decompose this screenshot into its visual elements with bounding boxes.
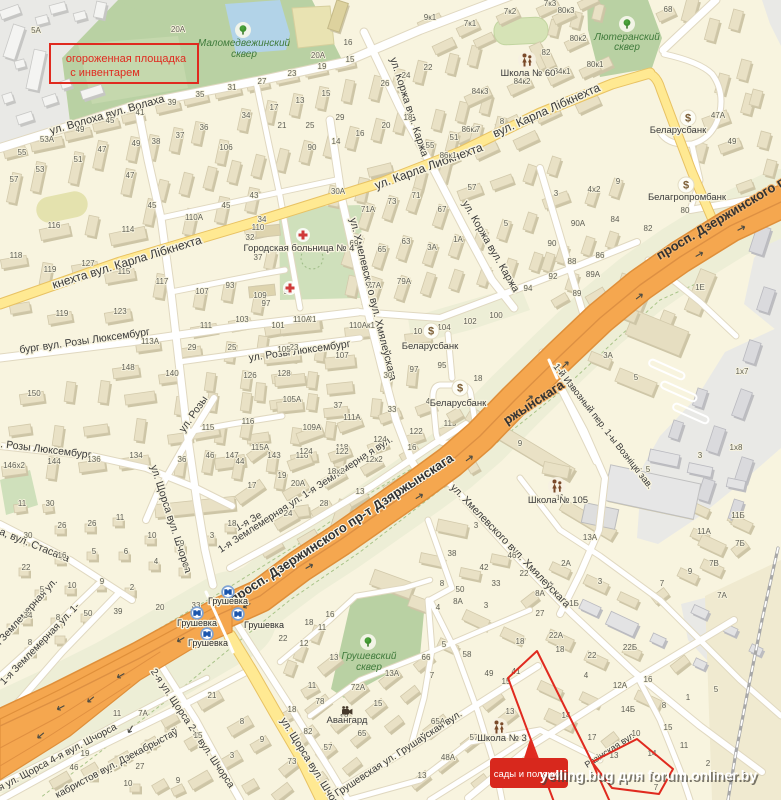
svg-text:48А: 48А: [441, 753, 456, 762]
svg-text:34: 34: [258, 215, 267, 224]
svg-text:110А: 110А: [293, 315, 312, 324]
svg-text:15: 15: [322, 89, 331, 98]
svg-text:$: $: [685, 113, 691, 125]
svg-text:20А: 20А: [171, 25, 186, 34]
svg-text:сквер: сквер: [614, 42, 640, 53]
svg-text:16: 16: [344, 38, 353, 47]
svg-text:65А: 65А: [431, 717, 446, 726]
svg-text:10: 10: [148, 531, 157, 540]
svg-text:14: 14: [332, 137, 341, 146]
svg-text:15: 15: [194, 731, 203, 740]
svg-text:115: 115: [118, 267, 131, 276]
svg-text:Белагропромбанк: Белагропромбанк: [648, 192, 727, 203]
svg-text:33: 33: [388, 405, 397, 414]
svg-text:82: 82: [644, 224, 653, 233]
svg-text:16: 16: [408, 443, 417, 452]
svg-text:$: $: [428, 326, 434, 338]
svg-text:5А: 5А: [31, 26, 41, 35]
svg-text:Школа № 105: Школа № 105: [528, 495, 588, 506]
svg-text:4х2: 4х2: [588, 185, 601, 194]
svg-text:22А: 22А: [549, 631, 564, 640]
svg-text:9: 9: [616, 177, 621, 186]
svg-text:11: 11: [113, 709, 122, 718]
svg-text:122: 122: [409, 427, 423, 436]
svg-text:42: 42: [480, 563, 489, 572]
svg-text:113А: 113А: [141, 337, 160, 346]
svg-text:34: 34: [242, 111, 251, 120]
svg-text:15: 15: [374, 699, 383, 708]
svg-text:Школа № 60: Школа № 60: [501, 68, 556, 79]
svg-text:13А: 13А: [583, 533, 598, 542]
svg-text:93: 93: [226, 281, 235, 290]
svg-text:Грушевский: Грушевский: [342, 651, 397, 662]
svg-text:18: 18: [305, 618, 314, 627]
svg-text:116: 116: [48, 221, 61, 230]
svg-text:71А: 71А: [361, 205, 376, 214]
svg-text:82: 82: [542, 48, 551, 57]
svg-text:111А: 111А: [343, 413, 361, 422]
svg-text:147: 147: [225, 451, 239, 460]
svg-text:22: 22: [279, 634, 288, 643]
svg-text:95: 95: [438, 361, 447, 370]
svg-text:Грушевка: Грушевка: [188, 638, 228, 648]
svg-text:46: 46: [206, 451, 215, 460]
svg-text:100: 100: [489, 311, 503, 320]
svg-text:18: 18: [556, 645, 565, 654]
svg-text:7к3: 7к3: [544, 0, 557, 8]
svg-text:29: 29: [336, 113, 345, 122]
svg-text:11А: 11А: [697, 527, 711, 536]
svg-text:18: 18: [288, 705, 297, 714]
svg-text:90: 90: [308, 143, 317, 152]
svg-text:3: 3: [210, 531, 215, 540]
svg-text:84: 84: [611, 215, 620, 224]
svg-text:7А: 7А: [138, 709, 148, 718]
svg-text:Грушевка: Грушевка: [244, 620, 284, 630]
svg-text:105А: 105А: [283, 395, 302, 404]
svg-text:37: 37: [176, 131, 185, 140]
svg-text:36: 36: [200, 123, 209, 132]
svg-text:32: 32: [246, 233, 255, 242]
svg-text:114: 114: [122, 225, 135, 234]
svg-text:65: 65: [378, 245, 387, 254]
svg-text:106: 106: [219, 143, 233, 152]
svg-text:yelling.bug для forum.onliner.: yelling.bug для forum.onliner.by: [540, 767, 758, 783]
svg-text:8: 8: [440, 579, 445, 588]
svg-text:20: 20: [156, 603, 165, 612]
svg-text:11: 11: [680, 741, 689, 750]
svg-text:88: 88: [568, 257, 577, 266]
svg-text:Маломедвежинский: Маломедвежинский: [198, 38, 291, 49]
svg-text:38: 38: [448, 549, 457, 558]
svg-text:15: 15: [664, 723, 673, 732]
svg-text:89А: 89А: [586, 270, 601, 279]
svg-text:17: 17: [588, 733, 597, 742]
svg-text:146х2: 146х2: [3, 461, 25, 470]
svg-text:49: 49: [485, 669, 494, 678]
svg-text:39: 39: [114, 607, 123, 616]
svg-text:10: 10: [632, 729, 641, 738]
svg-text:7: 7: [660, 579, 665, 588]
svg-text:13: 13: [330, 653, 339, 662]
svg-text:21: 21: [278, 121, 287, 130]
svg-text:7Б: 7Б: [735, 539, 745, 548]
svg-text:сквер: сквер: [356, 662, 382, 673]
svg-text:13: 13: [506, 707, 515, 716]
svg-text:45: 45: [222, 201, 231, 210]
svg-text:10: 10: [124, 779, 133, 788]
svg-text:18: 18: [516, 637, 525, 646]
svg-text:73: 73: [288, 757, 297, 766]
svg-text:12А: 12А: [613, 681, 628, 690]
svg-text:26: 26: [381, 79, 390, 88]
svg-text:18: 18: [228, 519, 237, 528]
svg-text:118: 118: [10, 251, 23, 260]
svg-text:7: 7: [476, 125, 481, 134]
svg-text:с инвентарем: с инвентарем: [70, 67, 140, 79]
svg-text:49: 49: [728, 137, 737, 146]
svg-text:18х2: 18х2: [327, 467, 345, 476]
svg-text:22: 22: [22, 563, 31, 572]
svg-text:107: 107: [335, 351, 349, 360]
svg-text:50: 50: [84, 609, 93, 618]
svg-text:26: 26: [88, 519, 97, 528]
svg-text:84к3: 84к3: [472, 87, 489, 96]
svg-text:3: 3: [230, 751, 235, 760]
svg-text:55: 55: [426, 141, 435, 150]
svg-text:80к2: 80к2: [570, 34, 587, 43]
svg-text:68: 68: [664, 5, 673, 14]
svg-text:5: 5: [40, 585, 45, 594]
svg-text:90А: 90А: [571, 219, 586, 228]
svg-text:$: $: [683, 180, 689, 192]
svg-text:3: 3: [554, 189, 559, 198]
svg-text:24: 24: [284, 509, 293, 518]
svg-text:4: 4: [154, 557, 159, 566]
svg-text:79А: 79А: [397, 277, 412, 286]
svg-text:1А: 1А: [453, 235, 463, 244]
svg-text:8: 8: [240, 717, 245, 726]
svg-text:57: 57: [324, 743, 333, 752]
svg-text:13А: 13А: [385, 669, 400, 678]
svg-text:3: 3: [484, 601, 489, 610]
svg-text:5: 5: [92, 547, 97, 556]
svg-text:30А: 30А: [331, 187, 346, 196]
svg-text:1х8: 1х8: [730, 443, 743, 452]
svg-text:122: 122: [335, 447, 349, 456]
svg-text:16: 16: [326, 610, 335, 619]
svg-text:78: 78: [316, 697, 325, 706]
svg-text:5: 5: [442, 640, 447, 649]
svg-text:1Е: 1Е: [695, 283, 705, 292]
svg-text:8А: 8А: [453, 597, 463, 606]
svg-text:12: 12: [300, 639, 309, 648]
svg-text:57: 57: [468, 183, 477, 192]
svg-text:24: 24: [402, 71, 411, 80]
svg-text:12х2: 12х2: [365, 455, 383, 464]
svg-text:143: 143: [267, 451, 281, 460]
svg-text:128: 128: [277, 369, 291, 378]
svg-text:Беларусбанк: Беларусбанк: [430, 398, 487, 409]
svg-text:47: 47: [98, 145, 107, 154]
svg-text:38: 38: [152, 137, 161, 146]
svg-text:92: 92: [549, 272, 558, 281]
svg-text:97: 97: [262, 299, 271, 308]
svg-text:105: 105: [277, 345, 291, 354]
svg-text:77А: 77А: [367, 281, 382, 290]
svg-text:45: 45: [148, 201, 157, 210]
svg-text:Школа № 3: Школа № 3: [477, 733, 527, 744]
svg-text:15: 15: [346, 55, 355, 64]
svg-text:19: 19: [278, 471, 287, 480]
svg-text:49: 49: [76, 125, 85, 134]
svg-text:45: 45: [106, 116, 115, 125]
svg-text:21: 21: [208, 691, 217, 700]
svg-text:110А: 110А: [185, 213, 204, 222]
svg-text:Беларусбанк: Беларусбанк: [650, 125, 707, 136]
svg-text:148: 148: [121, 363, 135, 372]
svg-text:101: 101: [271, 321, 285, 330]
svg-text:9: 9: [180, 539, 185, 548]
svg-text:27: 27: [536, 609, 545, 618]
svg-text:119: 119: [44, 265, 57, 274]
svg-text:8А: 8А: [535, 589, 545, 598]
svg-text:11: 11: [308, 681, 317, 690]
svg-text:Грушевка: Грушевка: [208, 596, 248, 606]
svg-text:134: 134: [129, 451, 143, 460]
svg-text:9: 9: [518, 439, 523, 448]
svg-text:46: 46: [508, 551, 517, 560]
svg-text:20: 20: [382, 121, 391, 130]
svg-text:30: 30: [24, 531, 33, 540]
svg-text:19: 19: [318, 62, 327, 71]
svg-text:55: 55: [18, 148, 27, 157]
svg-text:27: 27: [136, 762, 145, 771]
svg-text:8: 8: [500, 117, 505, 126]
svg-text:7: 7: [430, 671, 435, 680]
svg-text:90: 90: [548, 239, 557, 248]
svg-text:7к2: 7к2: [504, 7, 517, 16]
svg-text:8: 8: [28, 638, 33, 647]
svg-text:67: 67: [438, 205, 447, 214]
svg-text:20А: 20А: [291, 479, 306, 488]
svg-text:103: 103: [235, 315, 249, 324]
svg-text:29: 29: [188, 343, 197, 352]
svg-text:97: 97: [410, 365, 419, 374]
svg-text:26: 26: [58, 521, 67, 530]
svg-text:115: 115: [202, 423, 215, 432]
svg-text:22Б: 22Б: [623, 643, 637, 652]
svg-text:63: 63: [402, 237, 411, 246]
svg-text:47А: 47А: [711, 111, 726, 120]
svg-text:13: 13: [356, 487, 365, 496]
svg-text:94: 94: [524, 284, 533, 293]
svg-text:51: 51: [74, 155, 83, 164]
svg-text:107: 107: [195, 287, 209, 296]
svg-text:71: 71: [412, 191, 421, 200]
svg-text:13: 13: [418, 771, 427, 780]
svg-text:16: 16: [356, 129, 365, 138]
svg-text:9к1: 9к1: [424, 13, 437, 22]
svg-text:10: 10: [68, 581, 77, 590]
svg-text:31: 31: [228, 83, 237, 92]
svg-text:3: 3: [474, 521, 479, 530]
svg-text:Авангард: Авангард: [327, 715, 368, 726]
svg-text:1: 1: [686, 693, 691, 702]
svg-text:140: 140: [165, 369, 179, 378]
svg-text:22: 22: [588, 651, 597, 660]
svg-text:150: 150: [27, 389, 41, 398]
svg-text:5: 5: [646, 465, 651, 474]
svg-text:7к1: 7к1: [464, 19, 477, 28]
svg-text:$: $: [457, 383, 463, 395]
svg-text:1Б: 1Б: [569, 599, 579, 608]
svg-text:33: 33: [492, 579, 501, 588]
svg-text:82: 82: [304, 727, 313, 736]
svg-text:20А: 20А: [311, 51, 326, 60]
svg-text:102: 102: [463, 317, 477, 326]
svg-text:80к3: 80к3: [558, 6, 575, 15]
svg-text:9: 9: [688, 567, 693, 576]
svg-text:86: 86: [596, 251, 605, 260]
svg-text:49: 49: [132, 139, 141, 148]
svg-text:117: 117: [156, 277, 169, 286]
svg-text:53А: 53А: [40, 135, 55, 144]
svg-text:14Б: 14Б: [621, 705, 635, 714]
svg-text:3: 3: [698, 451, 703, 460]
svg-text:16: 16: [58, 551, 67, 560]
svg-text:46: 46: [70, 763, 79, 772]
svg-text:2А: 2А: [561, 559, 571, 568]
svg-text:17: 17: [270, 103, 279, 112]
svg-text:11: 11: [18, 499, 27, 508]
svg-text:47: 47: [126, 171, 135, 180]
svg-text:116: 116: [242, 417, 255, 426]
svg-text:Городская больница № 4: Городская больница № 4: [244, 243, 355, 254]
svg-text:89: 89: [573, 289, 582, 298]
svg-text:11: 11: [116, 513, 125, 522]
svg-text:23: 23: [290, 343, 299, 352]
svg-text:58: 58: [463, 650, 472, 659]
svg-text:23: 23: [288, 69, 297, 78]
svg-text:16: 16: [644, 675, 653, 684]
svg-text:124: 124: [373, 435, 387, 444]
svg-text:30: 30: [46, 499, 55, 508]
svg-text:110Ак1: 110Ак1: [349, 321, 376, 330]
svg-text:51: 51: [450, 133, 459, 142]
svg-text:84к1: 84к1: [554, 67, 571, 76]
svg-text:7В: 7В: [709, 559, 719, 568]
svg-text:30: 30: [384, 371, 393, 380]
svg-text:6: 6: [124, 547, 129, 556]
svg-text:136: 136: [87, 455, 101, 464]
svg-text:13: 13: [296, 96, 305, 105]
svg-text:9: 9: [260, 735, 265, 744]
svg-text:22: 22: [520, 569, 529, 578]
svg-text:4: 4: [584, 671, 589, 680]
svg-text:65: 65: [358, 729, 367, 738]
svg-text:5: 5: [504, 219, 509, 228]
svg-text:80: 80: [681, 206, 690, 215]
svg-text:119: 119: [56, 309, 69, 318]
svg-text:50: 50: [456, 585, 465, 594]
svg-text:25: 25: [306, 121, 315, 130]
svg-text:Беларусбанк: Беларусбанк: [402, 341, 459, 352]
svg-text:80к1: 80к1: [587, 60, 604, 69]
svg-text:43: 43: [250, 191, 259, 200]
svg-text:3: 3: [598, 577, 603, 586]
svg-text:5: 5: [714, 685, 719, 694]
svg-text:8: 8: [662, 701, 667, 710]
svg-text:37: 37: [334, 401, 343, 410]
svg-text:3А: 3А: [427, 243, 437, 252]
svg-text:73: 73: [388, 197, 397, 206]
svg-text:18: 18: [474, 374, 483, 383]
svg-text:11: 11: [318, 623, 327, 632]
svg-text:Грушевка: Грушевка: [177, 618, 217, 628]
svg-text:9: 9: [100, 577, 105, 586]
svg-text:9: 9: [176, 776, 181, 785]
svg-text:127: 127: [81, 259, 95, 268]
svg-text:25: 25: [228, 343, 237, 352]
svg-text:7А: 7А: [717, 591, 727, 600]
svg-text:18: 18: [404, 113, 413, 122]
svg-text:124: 124: [299, 447, 313, 456]
svg-text:3А: 3А: [603, 351, 613, 360]
svg-text:1х7: 1х7: [736, 367, 749, 376]
svg-text:109А: 109А: [303, 423, 322, 432]
svg-text:86к1: 86к1: [440, 151, 457, 160]
svg-text:2: 2: [130, 583, 135, 592]
svg-text:57: 57: [10, 175, 19, 184]
svg-text:41: 41: [136, 108, 145, 117]
svg-text:66: 66: [422, 653, 431, 662]
svg-text:19: 19: [81, 749, 90, 758]
svg-text:8: 8: [56, 613, 61, 622]
svg-text:144: 144: [47, 457, 61, 466]
svg-text:5: 5: [634, 373, 639, 382]
svg-text:огороженная площадка: огороженная площадка: [66, 53, 187, 65]
svg-text:53: 53: [36, 165, 45, 174]
svg-text:11Б: 11Б: [731, 511, 745, 520]
svg-text:111: 111: [200, 321, 213, 330]
svg-text:39: 39: [168, 98, 177, 107]
svg-text:110: 110: [252, 223, 265, 232]
svg-text:4: 4: [436, 603, 441, 612]
svg-text:1: 1: [184, 563, 189, 572]
svg-text:сквер: сквер: [231, 49, 257, 60]
svg-text:36: 36: [178, 455, 187, 464]
svg-text:37: 37: [254, 253, 263, 262]
svg-text:34: 34: [24, 611, 33, 620]
svg-text:123: 123: [113, 307, 127, 316]
svg-text:35: 35: [196, 90, 205, 99]
svg-text:17: 17: [248, 481, 257, 490]
svg-text:72А: 72А: [351, 683, 366, 692]
svg-text:28: 28: [320, 499, 329, 508]
svg-text:22: 22: [424, 63, 433, 72]
svg-text:126: 126: [243, 371, 257, 380]
svg-text:27: 27: [258, 77, 267, 86]
